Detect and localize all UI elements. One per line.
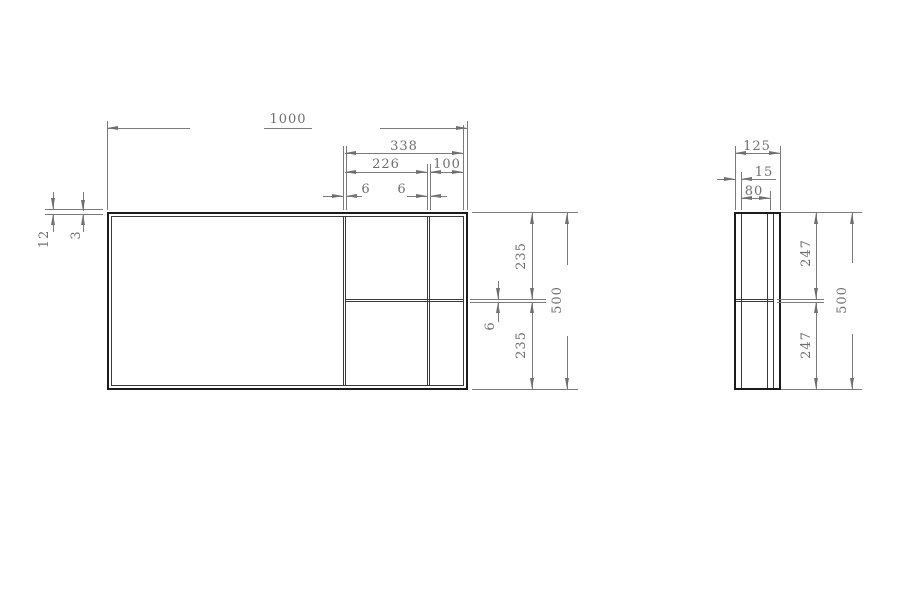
dimension-line xyxy=(532,302,533,389)
arrowhead xyxy=(452,151,463,155)
extension-line xyxy=(470,302,546,303)
dim-front-divider-a-label: 6 xyxy=(356,183,376,197)
dimension-line xyxy=(264,128,312,129)
dimension-line xyxy=(430,196,447,197)
arrowhead xyxy=(51,198,55,209)
side-shelf xyxy=(736,299,774,302)
extension-line xyxy=(470,299,546,300)
dim-side-body-depth-label: 80 xyxy=(730,185,778,199)
extension-line xyxy=(472,212,578,213)
arrowhead xyxy=(850,378,854,389)
dimension-line xyxy=(532,213,533,299)
dimension-line xyxy=(345,172,427,173)
dim-front-shelf-thickness-label: 6 xyxy=(484,304,498,348)
dim-side-total-depth-label: 125 xyxy=(733,140,781,154)
extension-line xyxy=(472,389,578,390)
front-shelf xyxy=(345,299,464,302)
dim-front-total-height-label: 500 xyxy=(551,278,565,322)
arrowhead xyxy=(81,200,85,211)
extension-line xyxy=(777,299,824,300)
extension-line xyxy=(45,209,103,210)
dimension-line xyxy=(816,213,817,299)
arrowhead xyxy=(724,177,735,181)
arrowhead xyxy=(814,378,818,389)
arrowhead xyxy=(530,378,534,389)
dimension-line xyxy=(108,128,190,129)
extension-line xyxy=(107,121,108,210)
dim-front-total-width-label: 1000 xyxy=(264,113,312,127)
arrowhead xyxy=(565,378,569,389)
dim-front-lower-opening-label: 235 xyxy=(515,323,529,367)
extension-line xyxy=(735,146,736,210)
dim-front-frame-edge-label: 12 xyxy=(38,217,52,261)
dim-side-front-panel-label: 15 xyxy=(752,166,776,180)
arrowhead xyxy=(530,288,534,299)
arrowhead xyxy=(416,194,427,198)
dim-front-opening-label: 226 xyxy=(362,158,410,172)
arrowhead xyxy=(107,126,118,130)
dim-side-upper-opening-label: 247 xyxy=(800,231,814,275)
arrowhead xyxy=(345,170,356,174)
dim-front-frame-face-label: 3 xyxy=(70,213,84,257)
arrowhead xyxy=(332,194,343,198)
arrowhead xyxy=(530,213,534,224)
arrowhead xyxy=(496,288,500,299)
arrowhead xyxy=(814,288,818,299)
dim-front-upper-opening-label: 235 xyxy=(515,234,529,278)
dim-side-total-height-label: 500 xyxy=(836,278,850,322)
dim-front-right-section-label: 338 xyxy=(380,140,428,154)
technical-drawing-canvas: 1000 338 226 100 6 6 12 3 235 xyxy=(0,0,900,599)
dimension-line xyxy=(53,215,54,232)
dim-front-divider-b-label: 6 xyxy=(392,183,412,197)
dimension-line xyxy=(498,303,499,322)
extension-line xyxy=(346,146,347,210)
dim-front-end-column-label: 100 xyxy=(423,158,471,172)
extension-line xyxy=(780,146,781,210)
arrowhead xyxy=(814,213,818,224)
arrowhead xyxy=(814,302,818,313)
arrowhead xyxy=(456,126,467,130)
dim-side-lower-opening-label: 247 xyxy=(800,323,814,367)
arrowhead xyxy=(565,213,569,224)
extension-line xyxy=(343,146,344,210)
dimension-line xyxy=(380,128,467,129)
dimension-line xyxy=(816,302,817,389)
extension-line xyxy=(781,389,862,390)
arrowhead xyxy=(850,213,854,224)
arrowhead xyxy=(530,302,534,313)
arrowhead xyxy=(345,151,356,155)
